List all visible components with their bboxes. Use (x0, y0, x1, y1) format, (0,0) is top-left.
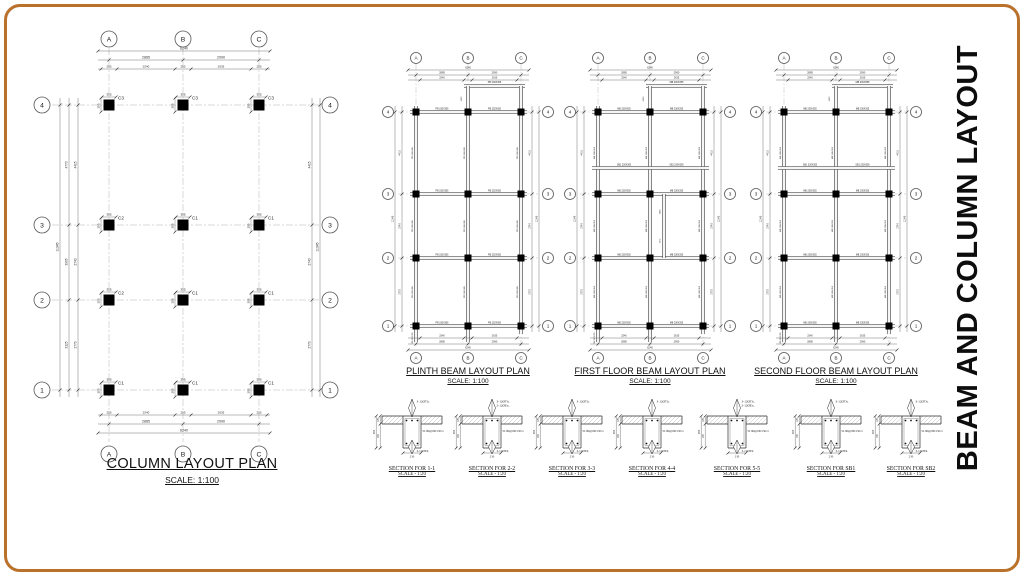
svg-text:4: 4 (729, 110, 732, 115)
drawing-sheet: 6240288529902552540255263525525525402552… (0, 0, 1024, 576)
svg-text:4415: 4415 (308, 161, 312, 168)
svg-text:MB 230X355: MB 230X355 (646, 146, 648, 159)
svg-text:C3: C3 (118, 96, 124, 101)
svg-text:11345: 11345 (760, 215, 763, 222)
svg-text:230: 230 (458, 433, 460, 438)
svg-text:PB 230X305: PB 230X305 (488, 109, 502, 111)
svg-text:2740: 2740 (308, 258, 312, 265)
section-sb2-drawing: 3-12ØTh.SL 8Ø@180/150c/c3-12ØTh.23030512… (871, 396, 951, 460)
section-3-3-drawing: 3-12ØTh.SL 8Ø@180/150c/c3-12ØTh.23035512… (532, 396, 612, 460)
svg-text:C3: C3 (192, 96, 198, 101)
svg-text:MB 230X355: MB 230X355 (594, 285, 596, 298)
svg-text:125: 125 (618, 417, 620, 422)
svg-text:MB 230X355: MB 230X355 (885, 146, 887, 159)
svg-text:MB 230X355: MB 230X355 (803, 323, 817, 325)
svg-text:PB 230X305: PB 230X305 (436, 191, 450, 193)
svg-text:11345: 11345 (392, 215, 395, 222)
svg-text:3-12ØTh.: 3-12ØTh. (916, 400, 929, 404)
svg-text:TB 230X305: TB 230X305 (780, 332, 782, 344)
svg-text:1000: 1000 (660, 209, 662, 214)
svg-text:MB 230X355: MB 230X355 (856, 109, 870, 111)
svg-text:2740: 2740 (529, 223, 532, 229)
svg-text:2885: 2885 (807, 71, 813, 75)
svg-text:6240: 6240 (465, 66, 471, 70)
svg-text:2: 2 (755, 256, 758, 261)
svg-text:C1: C1 (268, 381, 274, 386)
svg-text:SL 8Ø@180/150c/c: SL 8Ø@180/150c/c (748, 430, 770, 433)
svg-text:1: 1 (387, 324, 390, 329)
section-4-4-drawing: 3-12ØTh.SL 8Ø@180/150c/c3-12ØTh.23035512… (612, 396, 692, 460)
svg-text:125: 125 (378, 417, 380, 422)
svg-text:2740: 2740 (897, 223, 900, 229)
svg-text:PB 230X305: PB 230X305 (488, 191, 502, 193)
svg-text:SB1 230X305: SB1 230X305 (669, 165, 684, 167)
svg-text:6240: 6240 (833, 66, 839, 70)
svg-text:2635: 2635 (492, 77, 498, 80)
section-detail-3-3: 3-12ØTh.SL 8Ø@180/150c/c3-12ØTh.23035512… (532, 396, 612, 477)
svg-text:PB 230X305: PB 230X305 (464, 219, 466, 232)
svg-text:MB 230X355: MB 230X355 (832, 219, 834, 232)
svg-text:PB 230X305: PB 230X305 (436, 255, 450, 257)
first-floor-beam-layout-plan: MB 230X3551065SB1 230X305SB1 230X3051000… (560, 46, 740, 396)
section-1-1-scale: SCALE - 1:20 (372, 472, 452, 477)
svg-text:4: 4 (387, 110, 390, 115)
svg-text:C1: C1 (192, 216, 198, 221)
svg-text:4770: 4770 (65, 161, 69, 168)
svg-text:2990: 2990 (860, 340, 866, 344)
svg-text:125: 125 (703, 417, 705, 422)
svg-text:MB 230X355: MB 230X355 (617, 109, 631, 111)
svg-text:355: 355 (532, 429, 536, 434)
svg-text:355: 355 (180, 93, 185, 97)
first-floor-beam-plan-scale: SCALE: 1:100 (560, 378, 740, 385)
svg-text:230: 230 (490, 455, 495, 459)
second-floor-beam-plan-scale: SCALE: 1:100 (746, 378, 926, 385)
svg-text:PB 230X305: PB 230X305 (436, 323, 450, 325)
svg-text:PB 230X305: PB 230X305 (517, 285, 519, 298)
svg-text:2770: 2770 (74, 341, 78, 348)
svg-text:2770: 2770 (308, 341, 312, 348)
svg-text:6240: 6240 (647, 346, 653, 350)
svg-text:125: 125 (877, 417, 879, 422)
svg-text:355: 355 (247, 388, 251, 393)
svg-text:230: 230 (650, 455, 655, 459)
svg-text:230: 230 (378, 433, 380, 438)
svg-text:230: 230 (703, 433, 705, 438)
svg-text:PB 230X305: PB 230X305 (464, 285, 466, 298)
svg-text:2540: 2540 (439, 335, 445, 338)
svg-text:230: 230 (618, 433, 620, 438)
svg-text:MB 230X355: MB 230X355 (617, 191, 631, 193)
svg-text:TB 230X305: TB 230X305 (594, 332, 596, 344)
svg-text:MB 230X355: MB 230X355 (670, 323, 684, 325)
svg-text:3: 3 (328, 222, 332, 229)
svg-text:3-12ØTh.: 3-12ØTh. (657, 449, 670, 453)
svg-text:11345: 11345 (718, 215, 721, 222)
svg-text:4415: 4415 (74, 161, 78, 168)
svg-text:C1: C1 (192, 381, 198, 386)
svg-text:355: 355 (106, 93, 111, 97)
svg-text:3-12ØTh.: 3-12ØTh. (916, 449, 929, 453)
svg-text:3: 3 (40, 222, 44, 229)
svg-text:MB 230X355: MB 230X355 (856, 191, 870, 193)
svg-text:2990: 2990 (674, 71, 680, 75)
svg-text:B: B (834, 56, 837, 61)
svg-text:11345: 11345 (56, 242, 60, 251)
svg-text:3-12ØTh.: 3-12ØTh. (417, 449, 430, 453)
svg-text:11345: 11345 (316, 242, 320, 251)
svg-text:11345: 11345 (574, 215, 577, 222)
svg-text:355: 355 (180, 288, 185, 292)
second-floor-beam-plan-title: SECOND FLOOR BEAM LAYOUT PLAN (746, 366, 926, 376)
svg-text:355: 355 (256, 288, 261, 292)
svg-text:355: 355 (106, 288, 111, 292)
svg-text:11345: 11345 (904, 215, 907, 222)
svg-text:2635: 2635 (492, 335, 498, 338)
svg-text:3: 3 (915, 192, 918, 197)
svg-text:MB 230X355: MB 230X355 (594, 146, 596, 159)
svg-text:1: 1 (40, 387, 44, 394)
svg-text:3: 3 (547, 192, 550, 197)
svg-text:355: 355 (106, 213, 111, 217)
svg-text:MB 230X355: MB 230X355 (594, 219, 596, 232)
svg-text:355: 355 (180, 213, 185, 217)
section-3-3-scale: SCALE - 1:20 (532, 472, 612, 477)
plinth-beam-plan-scale: SCALE: 1:100 (378, 378, 558, 385)
svg-text:3125: 3125 (65, 341, 69, 348)
svg-text:MB 230X355: MB 230X355 (885, 219, 887, 232)
svg-text:255: 255 (256, 65, 261, 69)
section-detail-sb1: 3-12ØTh.SL 8Ø@180/150c/c3-12ØTh.23030512… (791, 396, 871, 477)
svg-text:2635: 2635 (860, 335, 866, 338)
section-detail-5-5: 3-12ØTh.2-12ØEx.SL 8Ø@180/150c/c3-12ØTh.… (697, 396, 777, 477)
svg-text:MB 230X355: MB 230X355 (832, 285, 834, 298)
svg-text:C2: C2 (118, 216, 124, 221)
svg-text:355: 355 (372, 429, 376, 434)
section-sb1-drawing: 3-12ØTh.SL 8Ø@180/150c/c3-12ØTh.23030512… (791, 396, 871, 460)
svg-text:SL 8Ø@180/150c/c: SL 8Ø@180/150c/c (583, 430, 605, 433)
svg-text:2635: 2635 (218, 411, 225, 415)
svg-text:B: B (181, 36, 186, 43)
svg-text:PB 230X305: PB 230X305 (517, 219, 519, 232)
svg-text:MB 230X355: MB 230X355 (856, 81, 870, 84)
column-plan-scale: SCALE: 1:100 (22, 475, 362, 485)
svg-text:SB1 230X305: SB1 230X305 (855, 165, 870, 167)
svg-text:2540: 2540 (621, 77, 627, 80)
svg-text:355: 355 (256, 213, 261, 217)
svg-text:3-12ØTh.: 3-12ØTh. (497, 449, 510, 453)
svg-text:SB1 230X305: SB1 230X305 (617, 165, 632, 167)
section-1-1-drawing: 3-12ØTh.SL 8Ø@180/150c/c3-12ØTh.23035512… (372, 396, 452, 460)
section-2-2-drawing: 3-12ØTh.2-12ØEx.SL 8Ø@180/150c/c3-12ØTh.… (452, 396, 532, 460)
svg-text:4: 4 (915, 110, 918, 115)
svg-text:C3: C3 (268, 96, 274, 101)
svg-text:4415: 4415 (767, 150, 770, 156)
svg-text:1: 1 (729, 324, 732, 329)
svg-text:355: 355 (247, 103, 251, 108)
svg-text:4415: 4415 (529, 150, 532, 156)
svg-text:2540: 2540 (143, 411, 150, 415)
svg-text:PB 230X305: PB 230X305 (488, 81, 502, 84)
svg-text:305: 305 (791, 429, 795, 434)
svg-text:MB 230X355: MB 230X355 (646, 219, 648, 232)
section-sb1-scale: SCALE - 1:20 (791, 472, 871, 477)
svg-text:355: 355 (697, 429, 701, 434)
svg-text:6240: 6240 (180, 429, 188, 433)
svg-text:1175: 1175 (660, 238, 662, 243)
svg-text:355: 355 (97, 388, 101, 393)
svg-text:MB 230X355: MB 230X355 (885, 285, 887, 298)
first-floor-beam-plan-drawing: MB 230X3551065SB1 230X305SB1 230X3051000… (560, 46, 740, 364)
svg-text:MB 230X355: MB 230X355 (780, 285, 782, 298)
section-sb2-scale: SCALE - 1:20 (871, 472, 951, 477)
svg-text:125: 125 (797, 417, 799, 422)
svg-text:C1: C1 (192, 291, 198, 296)
svg-text:2740: 2740 (711, 223, 714, 229)
svg-text:2740: 2740 (767, 223, 770, 229)
column-layout-plan: 6240288529902552540255263525525525402552… (22, 18, 362, 508)
svg-text:2770: 2770 (581, 289, 584, 295)
svg-text:2740: 2740 (581, 223, 584, 229)
section-5-5-scale: SCALE - 1:20 (697, 472, 777, 477)
svg-text:2990: 2990 (492, 340, 498, 344)
sheet-title-vertical: BEAM AND COLUMN LAYOUT (952, 38, 996, 478)
svg-text:2990: 2990 (217, 420, 225, 424)
svg-text:2885: 2885 (142, 56, 150, 60)
svg-text:C1: C1 (118, 381, 124, 386)
svg-text:2740: 2740 (399, 223, 402, 229)
svg-text:4415: 4415 (897, 150, 900, 156)
svg-text:SL 8Ø@180/150c/c: SL 8Ø@180/150c/c (663, 430, 685, 433)
svg-text:2740: 2740 (74, 258, 78, 265)
svg-text:4415: 4415 (581, 150, 584, 156)
svg-text:3-12ØTh.: 3-12ØTh. (742, 449, 755, 453)
first-floor-beam-plan-title: FIRST FLOOR BEAM LAYOUT PLAN (560, 366, 740, 376)
svg-text:2635: 2635 (218, 65, 225, 69)
svg-text:255: 255 (106, 411, 111, 415)
svg-text:TB 230X305: TB 230X305 (412, 332, 414, 344)
section-4-4-scale: SCALE - 1:20 (612, 472, 692, 477)
svg-text:255: 255 (180, 65, 185, 69)
svg-text:230: 230 (909, 455, 914, 459)
svg-text:2: 2 (569, 256, 572, 261)
svg-text:4415: 4415 (399, 150, 402, 156)
svg-text:2990: 2990 (217, 56, 225, 60)
svg-text:PB 230X305: PB 230X305 (488, 323, 502, 325)
svg-text:SL 8Ø@180/150c/c: SL 8Ø@180/150c/c (842, 430, 864, 433)
svg-text:MB 230X355: MB 230X355 (617, 323, 631, 325)
svg-text:11345: 11345 (536, 215, 539, 222)
svg-text:2885: 2885 (439, 71, 445, 75)
second-floor-beam-layout-plan: MB 230X3551065SB1 230X305SB1 230X305MB 2… (746, 46, 926, 396)
second-floor-beam-plan-drawing: MB 230X3551065SB1 230X305SB1 230X305MB 2… (746, 46, 926, 364)
svg-text:B: B (648, 356, 651, 361)
svg-text:3905: 3905 (65, 258, 69, 265)
plinth-beam-plan-title: PLINTH BEAM LAYOUT PLAN (378, 366, 558, 376)
svg-text:2770: 2770 (529, 289, 532, 295)
svg-text:2: 2 (328, 297, 332, 304)
svg-text:255: 255 (180, 411, 185, 415)
svg-text:MB 230X355: MB 230X355 (617, 255, 631, 257)
svg-text:2885: 2885 (439, 340, 445, 344)
svg-text:355: 355 (97, 223, 101, 228)
svg-text:MB 230X355: MB 230X355 (780, 146, 782, 159)
svg-text:C1: C1 (268, 291, 274, 296)
svg-text:1065: 1065 (461, 96, 463, 102)
svg-text:6240: 6240 (465, 346, 471, 350)
svg-text:A: A (107, 36, 112, 43)
svg-text:1065: 1065 (643, 96, 645, 102)
svg-text:3: 3 (729, 192, 732, 197)
svg-text:MB 230X355: MB 230X355 (803, 255, 817, 257)
svg-text:B: B (834, 356, 837, 361)
svg-text:1: 1 (547, 324, 550, 329)
svg-text:355: 355 (247, 223, 251, 228)
svg-text:2540: 2540 (439, 77, 445, 80)
svg-text:PB 230X305: PB 230X305 (464, 146, 466, 159)
svg-text:3: 3 (755, 192, 758, 197)
svg-text:4: 4 (569, 110, 572, 115)
svg-text:255: 255 (256, 411, 261, 415)
svg-text:4: 4 (755, 110, 758, 115)
svg-text:3-12ØTh.: 3-12ØTh. (417, 400, 430, 404)
svg-text:2: 2 (729, 256, 732, 261)
svg-text:2770: 2770 (897, 289, 900, 295)
svg-text:2635: 2635 (860, 77, 866, 80)
svg-text:2990: 2990 (674, 340, 680, 344)
section-detail-1-1: 3-12ØTh.SL 8Ø@180/150c/c3-12ØTh.23035512… (372, 396, 452, 477)
svg-text:3-12ØTh.: 3-12ØTh. (836, 449, 849, 453)
svg-text:230: 230 (570, 455, 575, 459)
svg-text:2885: 2885 (142, 420, 150, 424)
svg-text:2770: 2770 (399, 289, 402, 295)
svg-text:MB 230X355: MB 230X355 (670, 191, 684, 193)
svg-text:2-12ØEx.: 2-12ØEx. (497, 404, 510, 408)
svg-text:355: 355 (452, 429, 456, 434)
svg-text:C: C (257, 36, 262, 43)
svg-text:305: 305 (871, 429, 875, 434)
svg-text:1: 1 (915, 324, 918, 329)
svg-text:PB 230X305: PB 230X305 (412, 285, 414, 298)
svg-text:1: 1 (755, 324, 758, 329)
svg-text:B: B (466, 56, 469, 61)
svg-text:2540: 2540 (807, 335, 813, 338)
svg-text:6240: 6240 (647, 66, 653, 70)
svg-text:355: 355 (97, 103, 101, 108)
svg-text:6240: 6240 (833, 346, 839, 350)
svg-text:MB 230X355: MB 230X355 (832, 146, 834, 159)
svg-text:MB 230X355: MB 230X355 (670, 109, 684, 111)
svg-text:180: 180 (877, 433, 879, 438)
svg-text:230: 230 (538, 433, 540, 438)
svg-text:1065: 1065 (829, 96, 831, 102)
svg-text:2885: 2885 (807, 340, 813, 344)
svg-text:1: 1 (328, 387, 332, 394)
plinth-beam-plan-drawing: PB 230X3051065PB 230X305PB 230X305PB 230… (378, 46, 558, 364)
svg-text:2770: 2770 (711, 289, 714, 295)
svg-text:B: B (466, 356, 469, 361)
svg-text:PB 230X305: PB 230X305 (436, 109, 450, 111)
svg-text:MB 230X355: MB 230X355 (803, 109, 817, 111)
svg-text:2: 2 (547, 256, 550, 261)
svg-text:355: 355 (171, 298, 175, 303)
column-plan-drawing: 6240288529902552540255263525525525402552… (22, 18, 362, 470)
svg-text:3-12ØTh.: 3-12ØTh. (577, 449, 590, 453)
svg-text:2540: 2540 (621, 335, 627, 338)
svg-text:SB1 230X305: SB1 230X305 (803, 165, 818, 167)
svg-text:355: 355 (97, 298, 101, 303)
svg-text:MB 230X355: MB 230X355 (646, 285, 648, 298)
svg-text:230: 230 (410, 455, 415, 459)
svg-text:355: 355 (256, 93, 261, 97)
svg-text:2885: 2885 (621, 71, 627, 75)
svg-text:4: 4 (40, 102, 44, 109)
svg-text:SL 8Ø@180/150c/c: SL 8Ø@180/150c/c (922, 430, 944, 433)
svg-text:2: 2 (387, 256, 390, 261)
svg-text:355: 355 (180, 378, 185, 382)
svg-text:355: 355 (247, 298, 251, 303)
svg-text:355: 355 (171, 223, 175, 228)
svg-text:2: 2 (915, 256, 918, 261)
svg-text:C1: C1 (268, 216, 274, 221)
section-detail-4-4: 3-12ØTh.SL 8Ø@180/150c/c3-12ØTh.23035512… (612, 396, 692, 477)
svg-text:MB 230X355: MB 230X355 (670, 255, 684, 257)
svg-text:3-12ØTh.: 3-12ØTh. (836, 400, 849, 404)
svg-text:2990: 2990 (492, 71, 498, 75)
svg-text:2885: 2885 (621, 340, 627, 344)
svg-text:125: 125 (458, 417, 460, 422)
svg-text:MB 230X355: MB 230X355 (670, 81, 684, 84)
svg-text:2540: 2540 (143, 65, 150, 69)
svg-text:C2: C2 (118, 291, 124, 296)
svg-text:230: 230 (829, 455, 834, 459)
svg-text:230: 230 (735, 455, 740, 459)
svg-text:1: 1 (569, 324, 572, 329)
svg-text:355: 355 (106, 378, 111, 382)
svg-text:MB 230X355: MB 230X355 (856, 255, 870, 257)
svg-text:MB 230X355: MB 230X355 (699, 219, 701, 232)
svg-text:125: 125 (538, 417, 540, 422)
svg-text:2635: 2635 (674, 77, 680, 80)
svg-text:2770: 2770 (767, 289, 770, 295)
section-2-2-scale: SCALE - 1:20 (452, 472, 532, 477)
svg-text:3: 3 (387, 192, 390, 197)
svg-text:2: 2 (40, 297, 44, 304)
svg-text:4: 4 (547, 110, 550, 115)
section-detail-2-2: 3-12ØTh.2-12ØEx.SL 8Ø@180/150c/c3-12ØTh.… (452, 396, 532, 477)
svg-text:MB 230X355: MB 230X355 (699, 285, 701, 298)
svg-text:MB 230X355: MB 230X355 (699, 146, 701, 159)
svg-text:355: 355 (612, 429, 616, 434)
svg-text:355: 355 (171, 103, 175, 108)
svg-text:PB 230X305: PB 230X305 (488, 255, 502, 257)
svg-text:SL 8Ø@180/150c/c: SL 8Ø@180/150c/c (423, 430, 445, 433)
svg-text:B: B (648, 56, 651, 61)
section-5-5-drawing: 3-12ØTh.2-12ØEx.SL 8Ø@180/150c/c3-12ØTh.… (697, 396, 777, 460)
svg-text:2540: 2540 (807, 77, 813, 80)
svg-text:PB 230X305: PB 230X305 (412, 146, 414, 159)
svg-text:MB 230X355: MB 230X355 (856, 323, 870, 325)
svg-text:355: 355 (171, 388, 175, 393)
svg-text:PB 230X305: PB 230X305 (412, 219, 414, 232)
svg-text:2990: 2990 (860, 71, 866, 75)
svg-text:355: 355 (256, 378, 261, 382)
svg-text:3-12ØTh.: 3-12ØTh. (577, 400, 590, 404)
svg-text:2-12ØEx.: 2-12ØEx. (742, 404, 755, 408)
svg-text:3: 3 (569, 192, 572, 197)
column-plan-title: COLUMN LAYOUT PLAN (22, 456, 362, 472)
svg-text:SL 8Ø@180/150c/c: SL 8Ø@180/150c/c (503, 430, 525, 433)
